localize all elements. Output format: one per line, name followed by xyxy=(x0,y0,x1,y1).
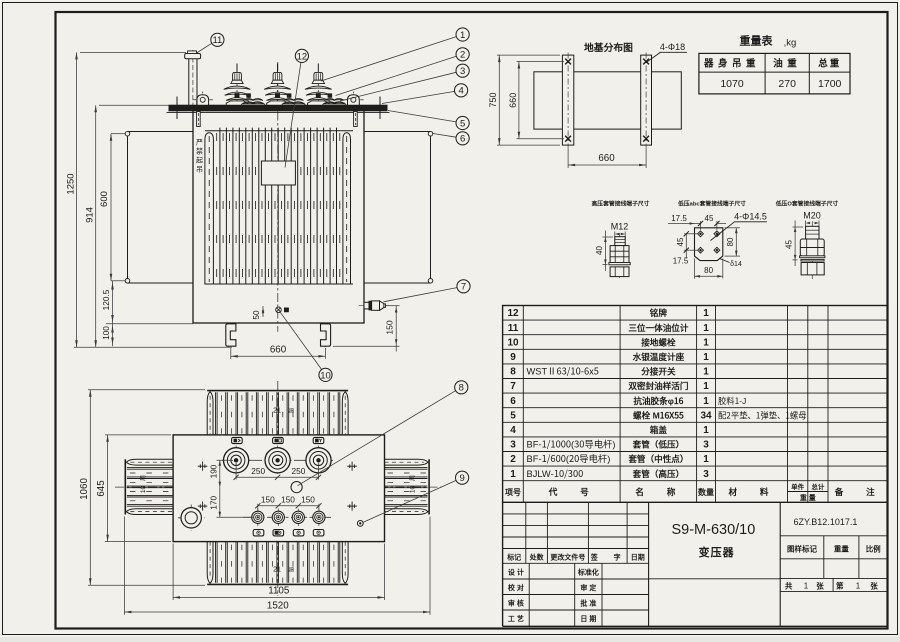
svg-text:工 艺: 工 艺 xyxy=(508,614,524,624)
svg-text:170: 170 xyxy=(209,495,219,509)
svg-text:BJLW-10/300: BJLW-10/300 xyxy=(527,466,584,480)
svg-text:备 注: 备 注 xyxy=(834,486,881,498)
svg-text:共: 共 xyxy=(785,581,793,592)
svg-text:7: 7 xyxy=(510,381,516,392)
svg-text:1060: 1060 xyxy=(79,478,90,500)
svg-text:150: 150 xyxy=(385,320,395,335)
svg-text:配2平垫、1弹垫、1螺母: 配2平垫、1弹垫、1螺母 xyxy=(718,409,807,421)
svg-text:1700: 1700 xyxy=(818,78,842,90)
svg-text:单件: 单件 xyxy=(791,481,805,491)
svg-text:21: 21 xyxy=(273,567,281,574)
svg-text:变压器: 变压器 xyxy=(699,544,735,560)
svg-text:标记: 标记 xyxy=(506,552,521,562)
svg-text:比例: 比例 xyxy=(866,544,881,555)
svg-text:660: 660 xyxy=(598,153,615,164)
svg-text:1520: 1520 xyxy=(267,600,289,611)
svg-text:标准化: 标准化 xyxy=(577,568,599,578)
svg-text:1: 1 xyxy=(460,30,465,41)
svg-text:周: 周 xyxy=(287,407,296,413)
svg-text:箱盖: 箱盖 xyxy=(650,424,668,436)
svg-text:低压abc套管接线端子尺寸: 低压abc套管接线端子尺寸 xyxy=(677,199,746,208)
svg-text:S9-M-630/10: S9-M-630/10 xyxy=(671,522,755,538)
svg-text:BF-1/1000(30导电杆): BF-1/1000(30导电杆) xyxy=(527,437,616,451)
svg-text:11: 11 xyxy=(212,35,222,46)
svg-text:8: 8 xyxy=(510,367,516,378)
svg-text:45: 45 xyxy=(676,237,685,246)
svg-text:250: 250 xyxy=(251,466,265,476)
svg-text:抗油胶条φ16: 抗油胶条φ16 xyxy=(633,395,683,407)
svg-text:1: 1 xyxy=(703,367,709,378)
svg-text:总计: 总计 xyxy=(811,481,825,491)
svg-text:4: 4 xyxy=(458,86,463,97)
svg-text:17.5: 17.5 xyxy=(671,214,687,223)
svg-text:80: 80 xyxy=(726,237,735,246)
svg-text:3: 3 xyxy=(460,66,465,77)
svg-text:1250: 1250 xyxy=(66,173,77,194)
svg-text:2: 2 xyxy=(460,50,465,61)
svg-text:1: 1 xyxy=(703,425,709,436)
svg-text:660: 660 xyxy=(508,93,518,108)
svg-text:1: 1 xyxy=(703,308,709,319)
svg-text:套管（低压）: 套管（低压） xyxy=(633,439,685,451)
svg-text:重 量: 重 量 xyxy=(800,493,816,503)
svg-text:660: 660 xyxy=(270,345,287,356)
svg-text:接地螺栓: 接地螺栓 xyxy=(641,336,676,348)
svg-text:9: 9 xyxy=(459,473,464,484)
svg-text:6: 6 xyxy=(460,134,465,145)
svg-text:油重: 油重 xyxy=(773,56,801,70)
svg-text:铭牌: 铭牌 xyxy=(650,307,668,319)
svg-text:重量表: 重量表 xyxy=(740,33,774,49)
svg-text:5: 5 xyxy=(510,410,516,421)
svg-text:1: 1 xyxy=(703,337,709,348)
svg-text:2: 2 xyxy=(510,454,516,465)
svg-text:代 号: 代 号 xyxy=(548,486,595,498)
svg-text:1: 1 xyxy=(703,323,709,334)
svg-text:器身吊重: 器身吊重 xyxy=(703,56,760,70)
svg-text:7: 7 xyxy=(461,282,466,293)
svg-text:1070: 1070 xyxy=(720,78,744,90)
svg-text:高压套管接线端子尺寸: 高压套管接线端子尺寸 xyxy=(592,199,650,208)
svg-text:600: 600 xyxy=(99,191,110,207)
svg-text:吊: 吊 xyxy=(196,165,203,175)
svg-text:1: 1 xyxy=(703,454,709,465)
svg-text:重量: 重量 xyxy=(834,544,849,555)
svg-text:胶料1-J: 胶料1-J xyxy=(718,395,746,407)
svg-text:套管（高压）: 套管（高压） xyxy=(633,468,685,480)
svg-text:批 准: 批 准 xyxy=(580,599,596,609)
svg-text:10: 10 xyxy=(320,370,331,381)
svg-text:4: 4 xyxy=(510,425,516,436)
svg-text:螺栓 M16X55: 螺栓 M16X55 xyxy=(633,409,684,421)
svg-text:100: 100 xyxy=(101,326,111,340)
svg-text:处数: 处数 xyxy=(529,552,545,562)
svg-text:150: 150 xyxy=(261,494,275,504)
svg-text:张: 张 xyxy=(816,581,824,592)
svg-text:4-Φ18: 4-Φ18 xyxy=(660,42,685,52)
svg-text:1105: 1105 xyxy=(268,586,290,597)
svg-text:12: 12 xyxy=(297,51,308,62)
svg-text:9: 9 xyxy=(510,352,516,363)
svg-text:设 计: 设 计 xyxy=(508,568,524,578)
svg-text:项号: 项号 xyxy=(505,487,521,498)
svg-text:张: 张 xyxy=(870,581,878,592)
svg-text:M20: M20 xyxy=(803,211,821,221)
svg-text:5: 5 xyxy=(460,118,465,129)
svg-text:周: 周 xyxy=(287,566,296,572)
svg-text:10: 10 xyxy=(507,337,519,348)
svg-text:50: 50 xyxy=(251,310,261,320)
svg-text:750: 750 xyxy=(488,92,498,107)
svg-text:1: 1 xyxy=(703,352,709,363)
svg-text:1: 1 xyxy=(703,381,709,392)
svg-text:190: 190 xyxy=(209,464,219,478)
svg-text:材 料: 材 料 xyxy=(729,486,775,498)
svg-text:日期: 日期 xyxy=(631,552,645,562)
svg-text:图样标记: 图样标记 xyxy=(787,544,817,555)
svg-text:80: 80 xyxy=(704,266,713,275)
svg-text:分接开关: 分接开关 xyxy=(641,366,676,378)
svg-text:1: 1 xyxy=(510,469,516,480)
svg-text:更改文件号: 更改文件号 xyxy=(550,552,585,562)
svg-text:1: 1 xyxy=(703,396,709,407)
svg-text:低压O套管接线端子尺寸: 低压O套管接线端子尺寸 xyxy=(775,199,839,208)
svg-text:6: 6 xyxy=(510,396,516,407)
svg-text:周: 周 xyxy=(408,475,417,481)
svg-text:270: 270 xyxy=(778,78,796,90)
svg-text:11: 11 xyxy=(508,323,519,334)
svg-text:45: 45 xyxy=(705,214,714,223)
svg-text:总重: 总重 xyxy=(818,56,841,70)
svg-text:645: 645 xyxy=(96,480,107,497)
svg-text:三位一体油位计: 三位一体油位计 xyxy=(628,322,689,334)
svg-text:审 核: 审 核 xyxy=(508,599,524,609)
svg-text:双密封油样活门: 双密封油样活门 xyxy=(628,380,689,392)
svg-text:12: 12 xyxy=(507,308,519,319)
svg-text:第: 第 xyxy=(836,581,844,592)
svg-text:150: 150 xyxy=(301,494,315,504)
svg-text:WSTⅡ63/10-6x5: WSTⅡ63/10-6x5 xyxy=(527,364,599,378)
svg-text:34: 34 xyxy=(700,410,712,421)
svg-text:3: 3 xyxy=(703,469,709,480)
svg-text:3: 3 xyxy=(703,440,709,451)
svg-text:地基分布图: 地基分布图 xyxy=(584,40,633,54)
svg-text:套管（中性点）: 套管（中性点） xyxy=(628,453,688,465)
svg-text:914: 914 xyxy=(85,207,96,223)
svg-text:150: 150 xyxy=(281,494,295,504)
svg-text:21: 21 xyxy=(273,408,281,415)
svg-text:数量: 数量 xyxy=(698,487,714,498)
svg-text:日 期: 日 期 xyxy=(580,614,596,624)
svg-text:250: 250 xyxy=(291,466,305,476)
svg-text:名 称: 名 称 xyxy=(635,486,681,498)
svg-text:1: 1 xyxy=(804,582,809,591)
svg-text:M12: M12 xyxy=(611,222,629,232)
svg-text:签 字: 签 字 xyxy=(590,552,625,562)
svg-text:1: 1 xyxy=(856,582,861,591)
svg-text:120.5: 120.5 xyxy=(101,289,111,310)
svg-text:校 对: 校 对 xyxy=(508,583,524,593)
svg-text:45: 45 xyxy=(785,240,794,249)
svg-text:6ZY.B12.1017.1: 6ZY.B12.1017.1 xyxy=(793,517,857,527)
svg-text:BF-1/600(20导电杆): BF-1/600(20导电杆) xyxy=(527,451,611,465)
svg-text:4-Φ14.5: 4-Φ14.5 xyxy=(734,212,767,222)
svg-text:3: 3 xyxy=(510,440,516,451)
svg-text:8: 8 xyxy=(459,383,464,394)
svg-text:水银温度计座: 水银温度计座 xyxy=(633,351,685,363)
svg-text:40: 40 xyxy=(595,246,604,255)
svg-text:10: 10 xyxy=(410,486,417,494)
svg-text:δ14: δ14 xyxy=(730,261,742,268)
svg-text:周: 周 xyxy=(138,475,147,481)
svg-text:审 定: 审 定 xyxy=(580,583,596,593)
svg-text:10: 10 xyxy=(140,486,147,494)
svg-text:,kg: ,kg xyxy=(784,38,797,49)
